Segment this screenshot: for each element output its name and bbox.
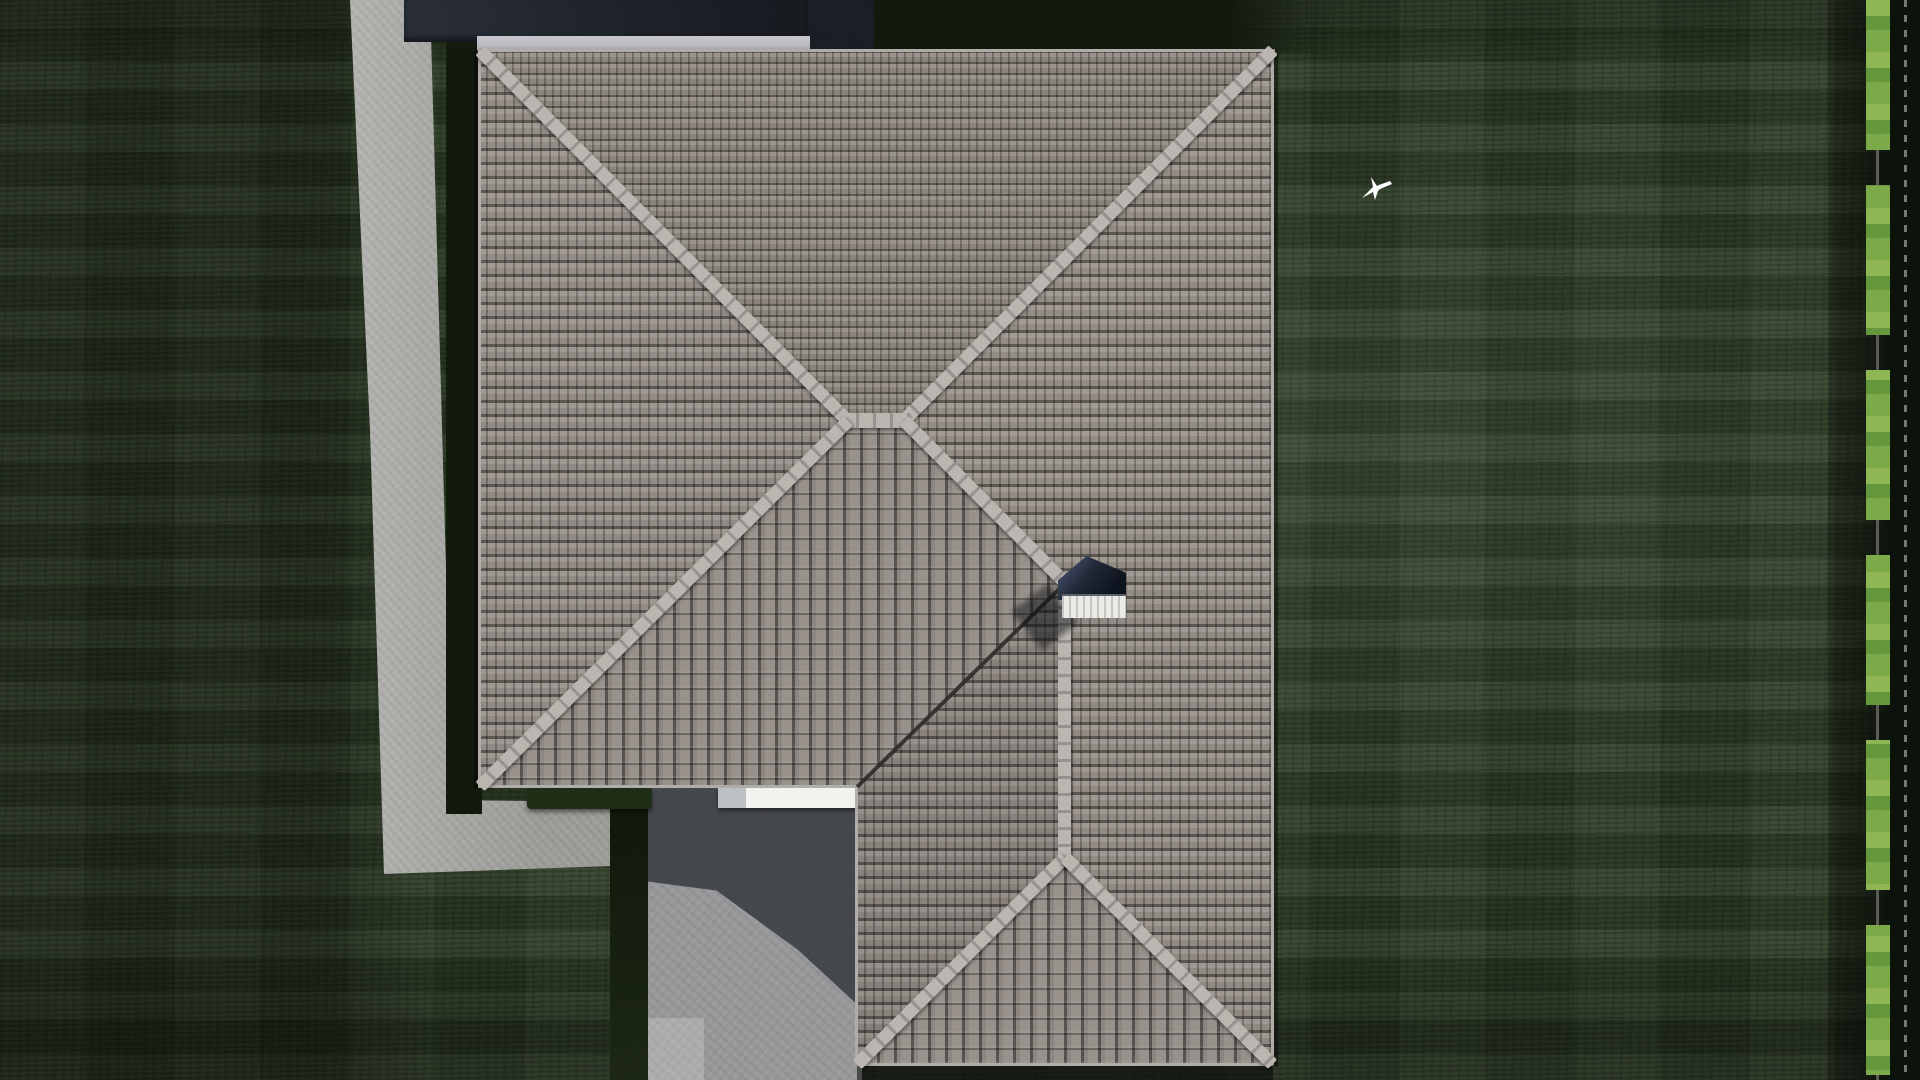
site-plan-render xyxy=(0,0,1920,1080)
eave-right-shadow xyxy=(1274,55,1278,1067)
chimney-vent xyxy=(1062,594,1126,618)
eave-top xyxy=(478,49,1275,52)
eave-wing-left xyxy=(855,787,858,1065)
eave-left-shadow xyxy=(474,51,478,789)
eave-left xyxy=(478,51,481,788)
bird-shape xyxy=(1362,177,1392,200)
eave-bottom-main xyxy=(480,785,858,788)
eave-wing-bottom-shadow xyxy=(857,1066,1273,1080)
bird-icon xyxy=(1362,176,1396,202)
